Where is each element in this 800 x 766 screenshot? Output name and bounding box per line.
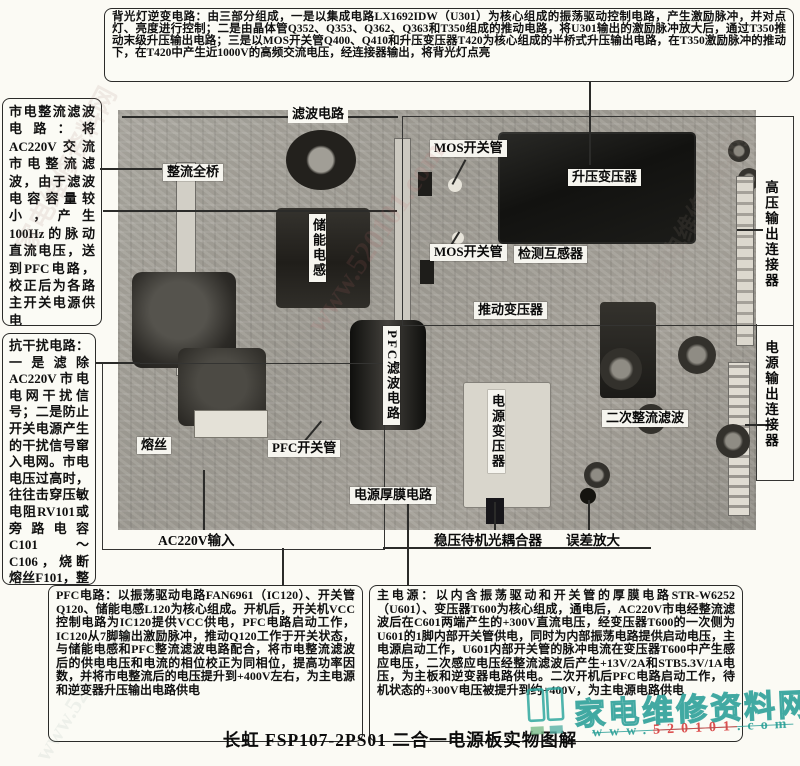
label-pfc-filter: PFC滤波电路 [383, 326, 400, 425]
annotation-anti-interference: 抗干扰电路：一是滤除AC220V市电电网干扰信号；二是防止开关电源产生的干扰信号… [2, 333, 96, 585]
annotation-text: 主电源：以内含振荡驱动和开关管的厚膜电路STR-W6252（U601）、变压器T… [377, 588, 735, 697]
annotation-backlight-inverter: 背光灯逆变电路：由三部分组成，一是以集成电路LX1692IDW（U301）为核心… [104, 8, 794, 82]
label-detect-transformer: 检测互感器 [514, 246, 587, 263]
annotation-text: 背光灯逆变电路：由三部分组成，一是以集成电路LX1692IDW（U301）为核心… [112, 11, 786, 59]
label-rectifier-bridge: 整流全桥 [163, 164, 223, 181]
label-standby-optocoupler: 稳压待机光耦合器 [434, 529, 542, 549]
page-caption: 长虹 FSP107-2PS01 二合一电源板实物图解 [0, 727, 800, 752]
label-fuse: 熔丝 [137, 437, 171, 454]
label-power-transformer: 电源变压器 [488, 390, 505, 473]
leader-anti-interference [95, 362, 140, 364]
pcb-capacitor [716, 424, 750, 458]
label-secondary-rectifier: 二次整流滤波 [602, 410, 688, 427]
label-ac-input: AC220V输入 [158, 529, 235, 549]
leader-pfc-box [282, 548, 284, 586]
section-divider-line [103, 210, 397, 212]
pcb-power-transformer-body [463, 382, 551, 508]
label-storage-inductor: 储能电感 [309, 214, 326, 282]
leader-rectifier-bridge [100, 168, 162, 170]
label-boost-transformer: 升压变压器 [568, 169, 641, 186]
label-error-amplifier: 误差放大 [566, 529, 620, 549]
label-mos-switch-bottom: MOS开关管 [430, 244, 507, 261]
leader-standby-opto [494, 502, 496, 530]
pcb-capacitor [584, 462, 610, 488]
leader-top-box [589, 82, 591, 165]
leader-main-power-box [407, 503, 409, 586]
annotation-text: 抗干扰电路：一是滤除AC220V市电电网干扰信号；二是防止开关电源产生的干扰信号… [9, 338, 89, 585]
leader-ac-input [203, 470, 205, 530]
label-mos-switch-top: MOS开关管 [430, 140, 507, 157]
label-power-output-connector: 电源输出连接器 [760, 340, 780, 449]
annotation-main-power: 主电源：以内含振荡驱动和开关管的厚膜电路STR-W6252（U601）、变压器T… [369, 585, 743, 742]
label-drive-transformer: 推动变压器 [474, 302, 547, 319]
scanned-manual-page: { "page": { "caption": "长虹 FSP107-2PS01 … [0, 0, 800, 755]
photo-top-edge-line [122, 116, 398, 118]
label-filter-circuit: 滤波电路 [288, 106, 348, 123]
leader-error-amp [588, 500, 590, 530]
label-power-thick-film: 电源厚膜电路 [350, 487, 436, 504]
annotation-mains-rectifier-filter: 市电整流滤波电路：将AC220V交流市电整流滤波，由于滤波电容容量较小，产生10… [2, 98, 102, 326]
label-pfc-switch: PFC开关管 [268, 440, 340, 457]
pcb-capacitor [600, 348, 642, 390]
annotation-text: PFC电路：以振荡驱动电路FAN6961（IC120）、开关管Q120、储能电感… [56, 588, 355, 697]
label-hv-output-connector: 高压输出连接器 [760, 180, 780, 289]
annotation-pfc-circuit: PFC电路：以振荡驱动电路FAN6961（IC120）、开关管Q120、储能电感… [48, 585, 363, 742]
annotation-text: 市电整流滤波电路：将AC220V交流市电整流滤波，由于滤波电容容量较小，产生10… [9, 104, 95, 326]
pcb-capacitor [678, 336, 716, 374]
pcb-toroid-coil [286, 130, 356, 190]
section-outline-ac-input [102, 363, 385, 550]
